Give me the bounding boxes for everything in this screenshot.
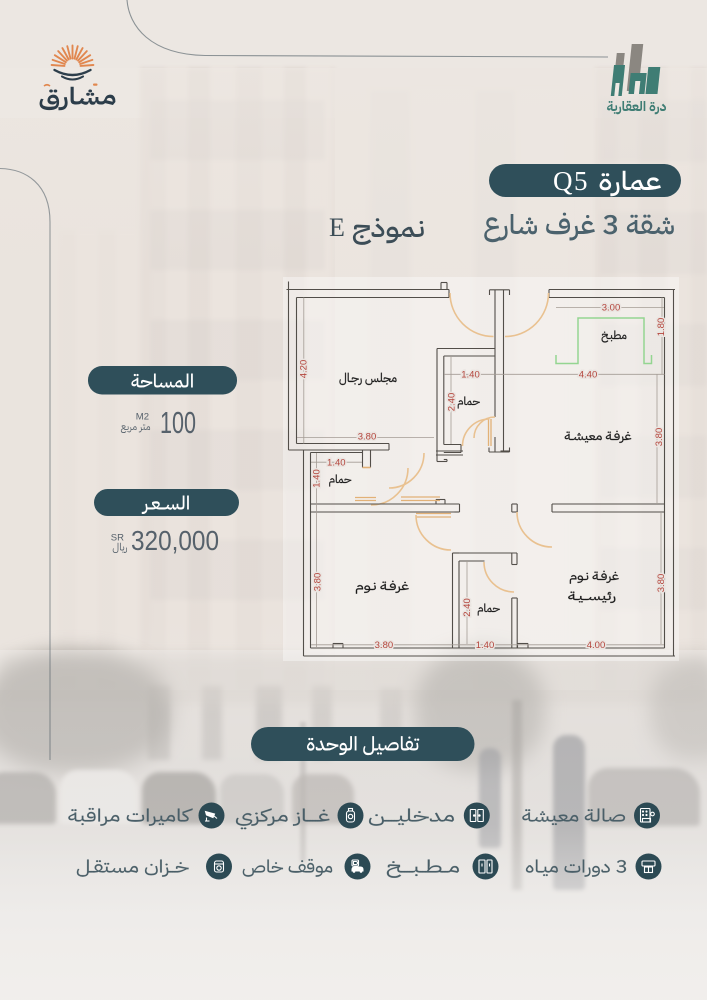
svg-text:1.80: 1.80 [656,318,667,337]
svg-text:Q5: Q5 [553,166,589,196]
svg-text:2.40: 2.40 [462,598,473,617]
svg-text:4.00: 4.00 [587,640,606,651]
svg-text:3.80: 3.80 [654,428,665,447]
svg-text:4.20: 4.20 [299,360,310,379]
svg-text:3.00: 3.00 [602,303,621,314]
svg-text:4.40: 4.40 [579,370,598,381]
svg-text:1.40: 1.40 [312,469,323,488]
svg-text:E: E [329,213,345,242]
svg-text:M2: M2 [136,412,149,423]
svg-text:1.40: 1.40 [461,369,480,380]
svg-text:1.40: 1.40 [476,640,495,651]
svg-text:3.80: 3.80 [313,573,324,592]
svg-text:2.40: 2.40 [447,393,458,412]
svg-text:100: 100 [160,405,196,440]
svg-text:1.40: 1.40 [327,458,346,469]
svg-text:3.80: 3.80 [375,640,394,651]
svg-text:3.80: 3.80 [358,432,377,443]
svg-text:320,000: 320,000 [131,525,219,556]
svg-text:SR: SR [111,533,124,544]
svg-text:3.80: 3.80 [656,574,667,593]
